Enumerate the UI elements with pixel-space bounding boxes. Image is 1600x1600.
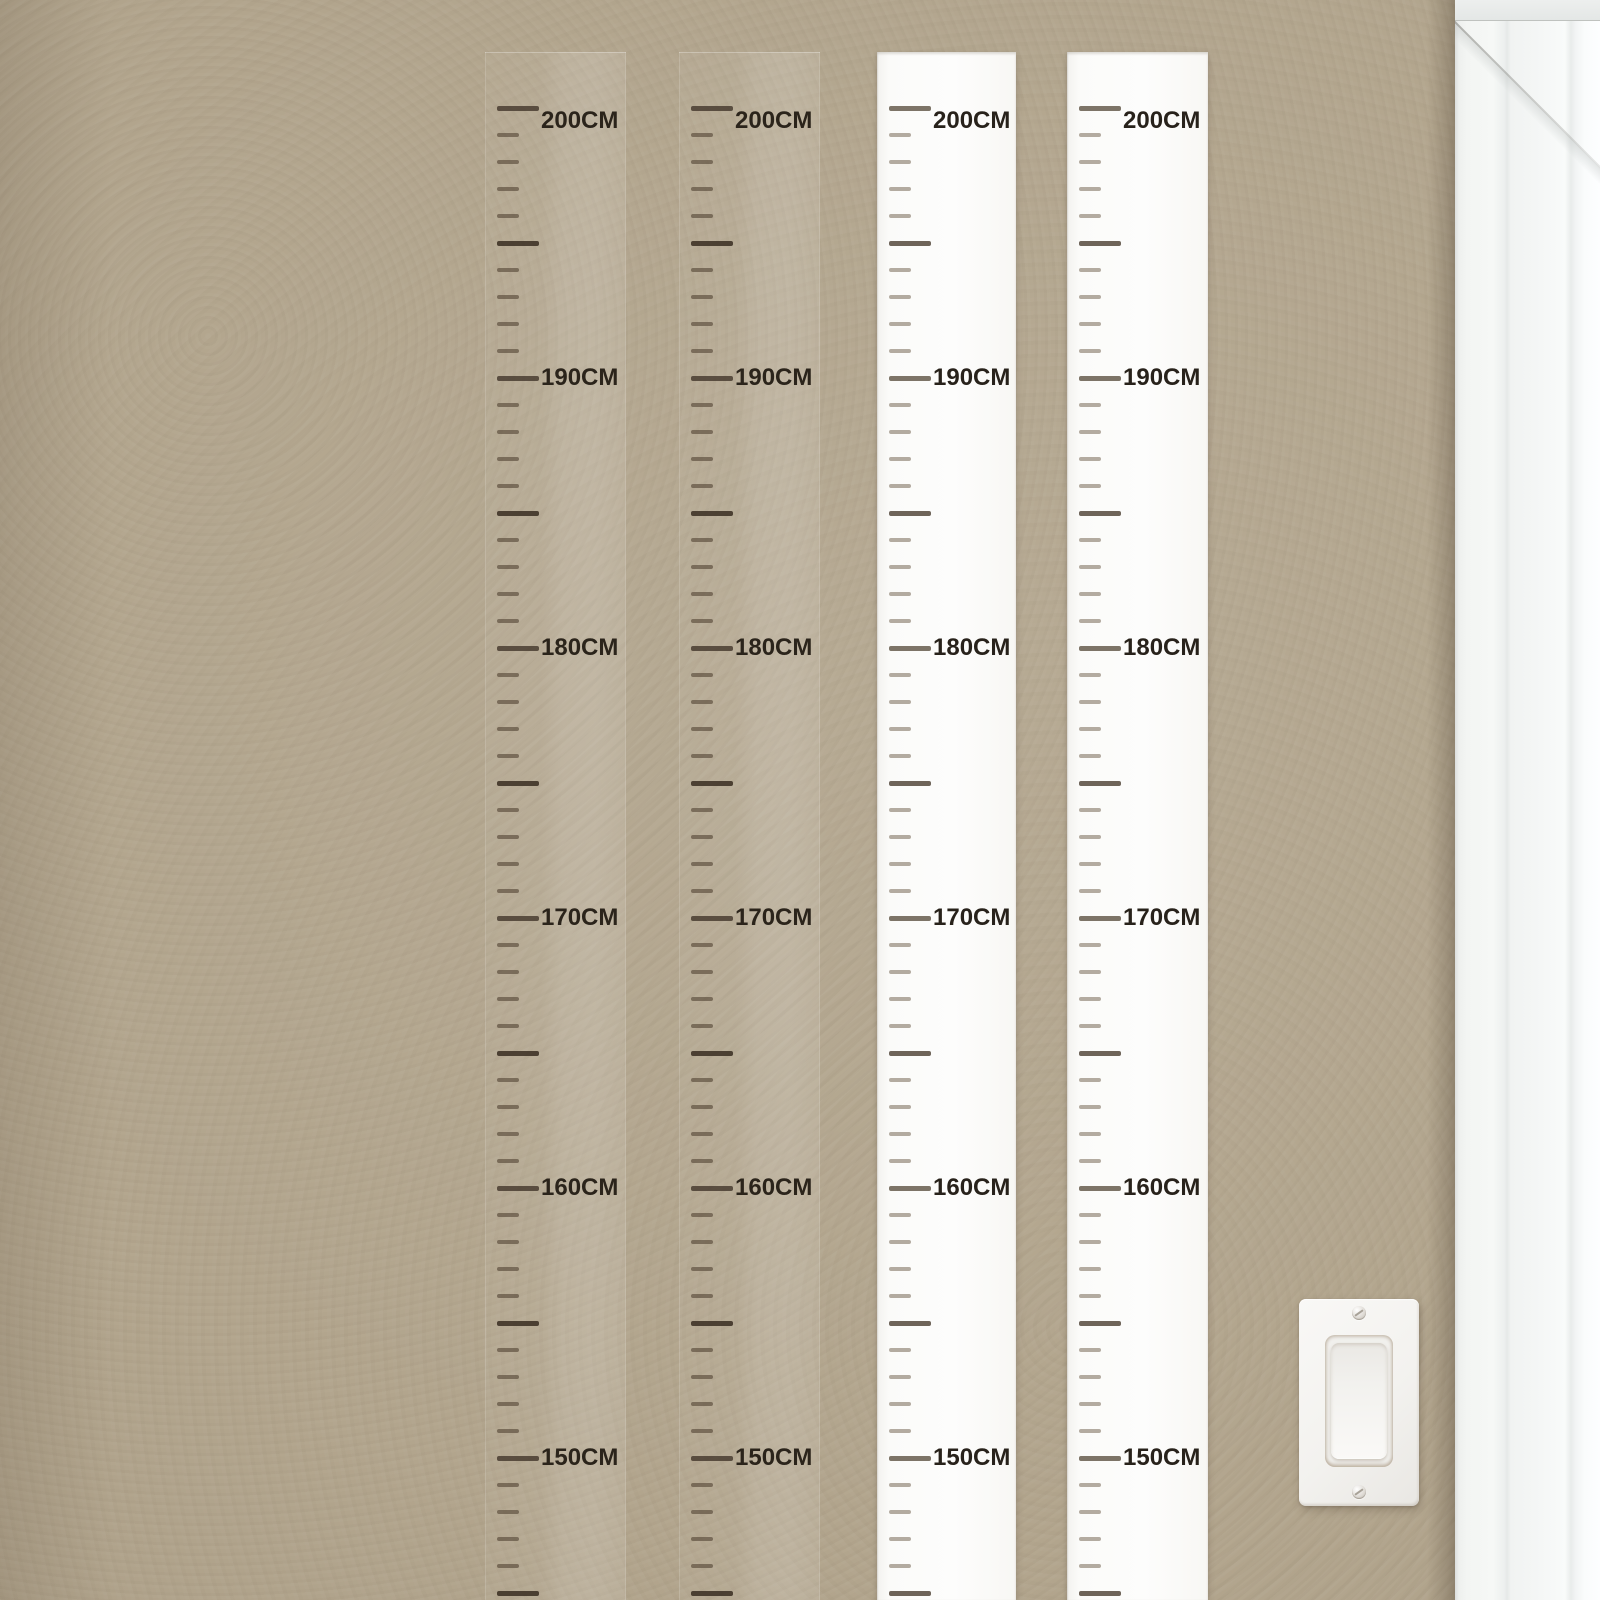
tick-158cm xyxy=(1079,1240,1101,1244)
tick-162cm xyxy=(1079,1132,1101,1136)
height-label-190cm: 190CM xyxy=(1123,364,1200,392)
tick-189cm xyxy=(691,403,713,407)
tick-165cm xyxy=(1079,1051,1121,1056)
tick-158cm xyxy=(691,1240,713,1244)
tick-187cm xyxy=(889,457,911,461)
tick-178cm xyxy=(1079,700,1101,704)
tick-193cm xyxy=(889,295,911,299)
height-label-180cm: 180CM xyxy=(541,634,618,662)
tick-164cm xyxy=(691,1078,713,1082)
tick-147cm xyxy=(691,1537,713,1541)
tick-184cm xyxy=(1079,538,1101,542)
tick-158cm xyxy=(889,1240,911,1244)
tick-198cm xyxy=(691,160,713,164)
tick-170cm xyxy=(889,916,931,921)
tick-168cm xyxy=(889,970,911,974)
tick-195cm xyxy=(1079,241,1121,246)
tick-152cm xyxy=(889,1402,911,1406)
tick-155cm xyxy=(1079,1321,1121,1326)
tick-162cm xyxy=(889,1132,911,1136)
tick-168cm xyxy=(691,970,713,974)
tick-187cm xyxy=(1079,457,1101,461)
tick-189cm xyxy=(1079,403,1101,407)
tick-149cm xyxy=(1079,1483,1101,1487)
tick-146cm xyxy=(1079,1564,1101,1568)
tick-145cm xyxy=(1079,1591,1121,1596)
tick-182cm xyxy=(691,592,713,596)
tick-148cm xyxy=(1079,1510,1101,1514)
tick-177cm xyxy=(1079,727,1101,731)
tick-195cm xyxy=(691,241,733,246)
tick-183cm xyxy=(1079,565,1101,569)
tick-171cm xyxy=(889,889,911,893)
tick-161cm xyxy=(691,1159,713,1163)
tick-180cm xyxy=(691,646,733,651)
tick-165cm xyxy=(497,1051,539,1056)
tick-182cm xyxy=(497,592,519,596)
height-label-160cm: 160CM xyxy=(541,1174,618,1202)
tick-184cm xyxy=(691,538,713,542)
switch-screw-top xyxy=(1352,1306,1366,1320)
tick-163cm xyxy=(1079,1105,1101,1109)
tick-174cm xyxy=(1079,808,1101,812)
height-label-190cm: 190CM xyxy=(541,364,618,392)
tick-175cm xyxy=(1079,781,1121,786)
tick-199cm xyxy=(497,133,519,137)
ruler-4: 200CM190CM180CM170CM160CM150CM xyxy=(1067,52,1208,1600)
door-casing-head xyxy=(1455,0,1600,21)
tick-161cm xyxy=(889,1159,911,1163)
tick-191cm xyxy=(1079,349,1101,353)
switch-screw-bottom xyxy=(1352,1485,1366,1499)
tick-186cm xyxy=(497,484,519,488)
tick-149cm xyxy=(497,1483,519,1487)
tick-167cm xyxy=(691,997,713,1001)
tick-169cm xyxy=(1079,943,1101,947)
tick-176cm xyxy=(497,754,519,758)
tick-153cm xyxy=(497,1375,519,1379)
tick-175cm xyxy=(691,781,733,786)
height-label-190cm: 190CM xyxy=(933,364,1010,392)
wall: 200CM190CM180CM170CM160CM150CM200CM190CM… xyxy=(0,0,1600,1600)
ruler-2: 200CM190CM180CM170CM160CM150CM xyxy=(679,52,820,1600)
tick-154cm xyxy=(1079,1348,1101,1352)
tick-200cm xyxy=(1079,106,1121,111)
tick-166cm xyxy=(1079,1024,1101,1028)
tick-195cm xyxy=(497,241,539,246)
tick-188cm xyxy=(889,430,911,434)
tick-190cm xyxy=(691,376,733,381)
tick-169cm xyxy=(889,943,911,947)
tick-199cm xyxy=(1079,133,1101,137)
height-label-150cm: 150CM xyxy=(933,1444,1010,1472)
tick-187cm xyxy=(497,457,519,461)
ruler-1: 200CM190CM180CM170CM160CM150CM xyxy=(485,52,626,1600)
tick-157cm xyxy=(497,1267,519,1271)
tick-172cm xyxy=(1079,862,1101,866)
tick-186cm xyxy=(691,484,713,488)
tick-176cm xyxy=(691,754,713,758)
tick-177cm xyxy=(889,727,911,731)
tick-190cm xyxy=(1079,376,1121,381)
tick-191cm xyxy=(497,349,519,353)
tick-189cm xyxy=(497,403,519,407)
tick-197cm xyxy=(497,187,519,191)
tick-172cm xyxy=(691,862,713,866)
tick-183cm xyxy=(889,565,911,569)
tick-149cm xyxy=(889,1483,911,1487)
tick-165cm xyxy=(889,1051,931,1056)
height-label-150cm: 150CM xyxy=(735,1444,812,1472)
tick-178cm xyxy=(691,700,713,704)
tick-176cm xyxy=(889,754,911,758)
height-label-150cm: 150CM xyxy=(541,1444,618,1472)
height-label-200cm: 200CM xyxy=(735,107,812,135)
tick-197cm xyxy=(1079,187,1101,191)
tick-160cm xyxy=(691,1186,733,1191)
tick-156cm xyxy=(889,1294,911,1298)
tick-151cm xyxy=(497,1429,519,1433)
tick-185cm xyxy=(1079,511,1121,516)
tick-182cm xyxy=(889,592,911,596)
tick-189cm xyxy=(889,403,911,407)
tick-188cm xyxy=(691,430,713,434)
tick-190cm xyxy=(497,376,539,381)
tick-155cm xyxy=(497,1321,539,1326)
tick-164cm xyxy=(1079,1078,1101,1082)
tick-199cm xyxy=(691,133,713,137)
tick-167cm xyxy=(889,997,911,1001)
tick-196cm xyxy=(497,214,519,218)
tick-156cm xyxy=(691,1294,713,1298)
tick-148cm xyxy=(691,1510,713,1514)
tick-197cm xyxy=(691,187,713,191)
tick-175cm xyxy=(497,781,539,786)
tick-181cm xyxy=(1079,619,1101,623)
tick-179cm xyxy=(691,673,713,677)
tick-191cm xyxy=(889,349,911,353)
tick-170cm xyxy=(1079,916,1121,921)
tick-197cm xyxy=(889,187,911,191)
tick-192cm xyxy=(1079,322,1101,326)
tick-172cm xyxy=(497,862,519,866)
tick-183cm xyxy=(497,565,519,569)
tick-179cm xyxy=(1079,673,1101,677)
tick-185cm xyxy=(497,511,539,516)
tick-147cm xyxy=(1079,1537,1101,1541)
tick-166cm xyxy=(889,1024,911,1028)
tick-192cm xyxy=(497,322,519,326)
tick-193cm xyxy=(497,295,519,299)
tick-192cm xyxy=(691,322,713,326)
tick-159cm xyxy=(691,1213,713,1217)
tick-148cm xyxy=(889,1510,911,1514)
tick-198cm xyxy=(1079,160,1101,164)
tick-162cm xyxy=(497,1132,519,1136)
tick-177cm xyxy=(497,727,519,731)
tick-181cm xyxy=(889,619,911,623)
tick-177cm xyxy=(691,727,713,731)
tick-152cm xyxy=(497,1402,519,1406)
tick-200cm xyxy=(691,106,733,111)
light-switch xyxy=(1299,1299,1419,1506)
tick-151cm xyxy=(691,1429,713,1433)
tick-200cm xyxy=(497,106,539,111)
tick-151cm xyxy=(1079,1429,1101,1433)
tick-150cm xyxy=(691,1456,733,1461)
height-label-170cm: 170CM xyxy=(933,904,1010,932)
tick-169cm xyxy=(497,943,519,947)
tick-195cm xyxy=(889,241,931,246)
tick-179cm xyxy=(889,673,911,677)
height-label-190cm: 190CM xyxy=(735,364,812,392)
tick-180cm xyxy=(1079,646,1121,651)
tick-174cm xyxy=(889,808,911,812)
tick-196cm xyxy=(1079,214,1101,218)
tick-199cm xyxy=(889,133,911,137)
tick-190cm xyxy=(889,376,931,381)
tick-174cm xyxy=(691,808,713,812)
tick-178cm xyxy=(497,700,519,704)
tick-171cm xyxy=(1079,889,1101,893)
tick-194cm xyxy=(691,268,713,272)
tick-185cm xyxy=(889,511,931,516)
tick-172cm xyxy=(889,862,911,866)
tick-180cm xyxy=(889,646,931,651)
tick-193cm xyxy=(691,295,713,299)
tick-155cm xyxy=(889,1321,931,1326)
tick-173cm xyxy=(889,835,911,839)
tick-152cm xyxy=(1079,1402,1101,1406)
height-label-180cm: 180CM xyxy=(933,634,1010,662)
tick-161cm xyxy=(497,1159,519,1163)
tick-188cm xyxy=(497,430,519,434)
tick-186cm xyxy=(889,484,911,488)
tick-150cm xyxy=(889,1456,931,1461)
door-casing-face xyxy=(1455,0,1600,1600)
tick-150cm xyxy=(1079,1456,1121,1461)
tick-145cm xyxy=(497,1591,539,1596)
height-label-160cm: 160CM xyxy=(1123,1174,1200,1202)
tick-180cm xyxy=(497,646,539,651)
tick-164cm xyxy=(497,1078,519,1082)
tick-154cm xyxy=(691,1348,713,1352)
tick-155cm xyxy=(691,1321,733,1326)
tick-176cm xyxy=(1079,754,1101,758)
tick-149cm xyxy=(691,1483,713,1487)
tick-152cm xyxy=(691,1402,713,1406)
tick-154cm xyxy=(889,1348,911,1352)
tick-157cm xyxy=(889,1267,911,1271)
tick-170cm xyxy=(691,916,733,921)
height-label-160cm: 160CM xyxy=(735,1174,812,1202)
height-label-200cm: 200CM xyxy=(541,107,618,135)
tick-174cm xyxy=(497,808,519,812)
tick-164cm xyxy=(889,1078,911,1082)
tick-193cm xyxy=(1079,295,1101,299)
tick-171cm xyxy=(497,889,519,893)
tick-166cm xyxy=(691,1024,713,1028)
tick-147cm xyxy=(889,1537,911,1541)
tick-157cm xyxy=(1079,1267,1101,1271)
tick-156cm xyxy=(1079,1294,1101,1298)
height-label-170cm: 170CM xyxy=(735,904,812,932)
tick-182cm xyxy=(1079,592,1101,596)
tick-186cm xyxy=(1079,484,1101,488)
tick-188cm xyxy=(1079,430,1101,434)
tick-196cm xyxy=(889,214,911,218)
tick-191cm xyxy=(691,349,713,353)
tick-178cm xyxy=(889,700,911,704)
tick-198cm xyxy=(497,160,519,164)
tick-181cm xyxy=(691,619,713,623)
tick-147cm xyxy=(497,1537,519,1541)
tick-168cm xyxy=(1079,970,1101,974)
tick-145cm xyxy=(691,1591,733,1596)
door-frame-shadow xyxy=(1427,0,1455,1600)
tick-200cm xyxy=(889,106,931,111)
tick-165cm xyxy=(691,1051,733,1056)
tick-196cm xyxy=(691,214,713,218)
switch-rocker xyxy=(1331,1343,1387,1459)
tick-192cm xyxy=(889,322,911,326)
tick-160cm xyxy=(497,1186,539,1191)
tick-148cm xyxy=(497,1510,519,1514)
tick-194cm xyxy=(497,268,519,272)
tick-146cm xyxy=(889,1564,911,1568)
height-label-170cm: 170CM xyxy=(1123,904,1200,932)
tick-194cm xyxy=(1079,268,1101,272)
tick-167cm xyxy=(1079,997,1101,1001)
tick-153cm xyxy=(1079,1375,1101,1379)
tick-179cm xyxy=(497,673,519,677)
tick-194cm xyxy=(889,268,911,272)
tick-173cm xyxy=(691,835,713,839)
tick-187cm xyxy=(691,457,713,461)
tick-162cm xyxy=(691,1132,713,1136)
tick-175cm xyxy=(889,781,931,786)
height-label-170cm: 170CM xyxy=(541,904,618,932)
tick-159cm xyxy=(497,1213,519,1217)
door-frame xyxy=(1455,0,1600,1600)
tick-161cm xyxy=(1079,1159,1101,1163)
tick-171cm xyxy=(691,889,713,893)
height-label-150cm: 150CM xyxy=(1123,1444,1200,1472)
tick-157cm xyxy=(691,1267,713,1271)
tick-170cm xyxy=(497,916,539,921)
tick-151cm xyxy=(889,1429,911,1433)
tick-173cm xyxy=(1079,835,1101,839)
tick-154cm xyxy=(497,1348,519,1352)
height-label-180cm: 180CM xyxy=(1123,634,1200,662)
tick-160cm xyxy=(889,1186,931,1191)
tick-168cm xyxy=(497,970,519,974)
tick-198cm xyxy=(889,160,911,164)
height-label-180cm: 180CM xyxy=(735,634,812,662)
ruler-3: 200CM190CM180CM170CM160CM150CM xyxy=(877,52,1016,1600)
tick-167cm xyxy=(497,997,519,1001)
tick-183cm xyxy=(691,565,713,569)
tick-153cm xyxy=(691,1375,713,1379)
tick-163cm xyxy=(889,1105,911,1109)
tick-160cm xyxy=(1079,1186,1121,1191)
tick-159cm xyxy=(1079,1213,1101,1217)
tick-184cm xyxy=(889,538,911,542)
tick-185cm xyxy=(691,511,733,516)
tick-163cm xyxy=(691,1105,713,1109)
height-label-200cm: 200CM xyxy=(933,107,1010,135)
height-label-200cm: 200CM xyxy=(1123,107,1200,135)
tick-173cm xyxy=(497,835,519,839)
tick-150cm xyxy=(497,1456,539,1461)
switch-rocker-frame xyxy=(1325,1335,1393,1467)
tick-181cm xyxy=(497,619,519,623)
tick-159cm xyxy=(889,1213,911,1217)
tick-145cm xyxy=(889,1591,931,1596)
tick-184cm xyxy=(497,538,519,542)
tick-169cm xyxy=(691,943,713,947)
tick-146cm xyxy=(497,1564,519,1568)
height-label-160cm: 160CM xyxy=(933,1174,1010,1202)
tick-153cm xyxy=(889,1375,911,1379)
tick-163cm xyxy=(497,1105,519,1109)
tick-158cm xyxy=(497,1240,519,1244)
tick-156cm xyxy=(497,1294,519,1298)
tick-146cm xyxy=(691,1564,713,1568)
tick-166cm xyxy=(497,1024,519,1028)
